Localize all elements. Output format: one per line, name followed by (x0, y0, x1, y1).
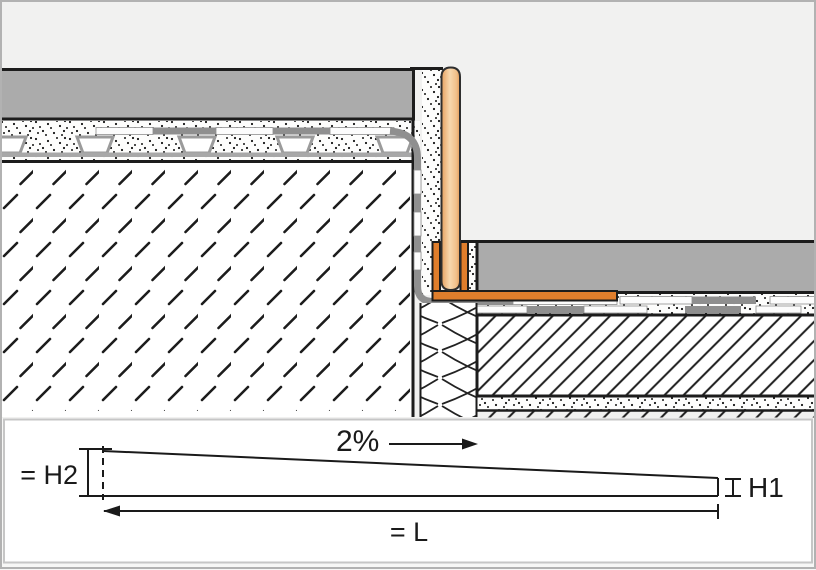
h2-label: = H2 (20, 460, 78, 490)
profile-retainer-right-wall (461, 242, 469, 291)
profile-retainer-left-wall (433, 242, 441, 291)
detail-drawing-svg: = H2 2% H1 = L (0, 0, 816, 570)
insulation-hatch (420, 303, 477, 417)
upper-tile (0, 70, 414, 120)
membrane-face-segments (414, 170, 421, 270)
construction-detail-figure: = H2 2% H1 = L (0, 0, 816, 570)
vertical-joint-mortar (422, 70, 441, 242)
upper-membrane-segments (96, 128, 394, 135)
lower-deck-assembly (459, 242, 816, 418)
length-label: = L (390, 517, 428, 547)
profile-horizontal-flange (433, 291, 618, 301)
edge-insulation-strip (420, 303, 477, 417)
h1-label: H1 (748, 472, 784, 503)
lower-screed-hatch (479, 317, 816, 395)
profile-vertical-upstand (442, 68, 461, 291)
lower-tile (477, 242, 816, 293)
joint-left-of-retainer (422, 240, 432, 295)
drainage-mat-base (0, 153, 416, 158)
upper-screed-hatch (0, 164, 410, 411)
slope-percent-label: 2% (336, 425, 379, 458)
lower-bond-band (477, 398, 816, 410)
slab-hatch-cut (478, 412, 816, 418)
